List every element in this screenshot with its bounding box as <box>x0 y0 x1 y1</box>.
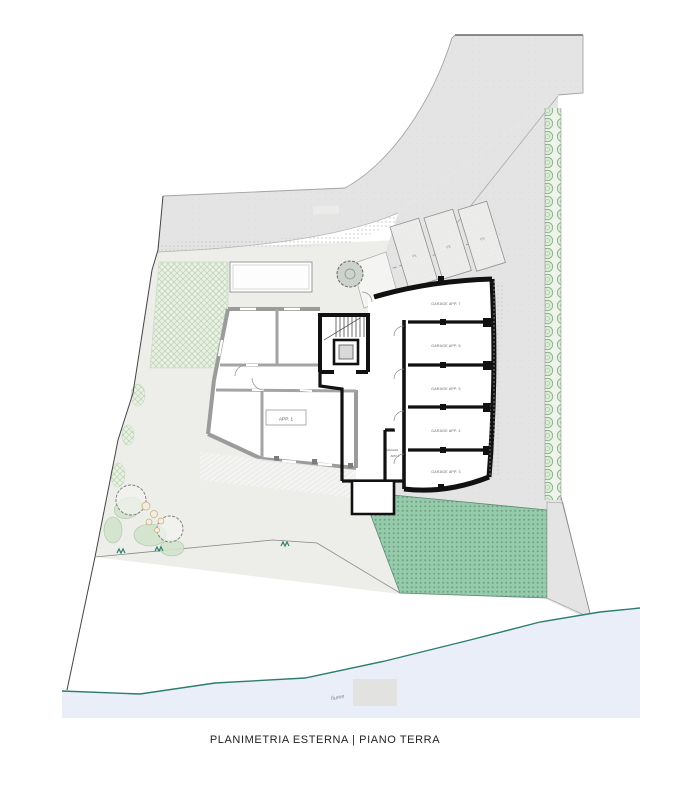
garage-label: GARAGE APP. 5 <box>431 387 461 391</box>
vestibule <box>352 482 394 514</box>
garden-hatch <box>150 262 228 368</box>
elevator-cab <box>339 345 353 359</box>
garage-label: GARAGE APP. 3 <box>431 470 461 474</box>
river-name-redacted-box <box>353 679 397 706</box>
site-plan-page: fiume P1 P2 P3 <box>0 0 681 800</box>
garage-label: GARAGE APP. 6 <box>431 344 461 348</box>
road-marking <box>313 205 339 214</box>
garage-label: GARAGE APP. 4 <box>431 429 461 433</box>
tree <box>337 261 363 287</box>
apartment-label: APP. 1 <box>279 417 294 423</box>
garage-label: GARAGE APP. 7 <box>431 302 461 306</box>
terrace <box>230 262 312 292</box>
hedge-strip <box>545 108 561 500</box>
page-title: PLANIMETRIA ESTERNA | PIANO TERRA <box>210 734 440 746</box>
site-plan-drawing: fiume P1 P2 P3 <box>0 0 681 800</box>
tree <box>116 485 146 515</box>
